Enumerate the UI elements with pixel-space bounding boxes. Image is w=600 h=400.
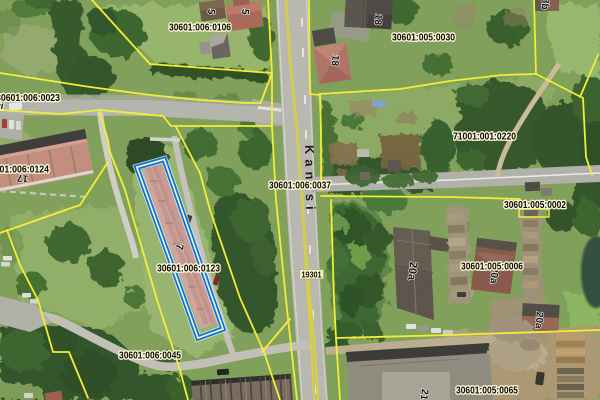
svg-text:argi: argi — [0, 101, 4, 112]
svg-text:20a: 20a — [405, 261, 419, 282]
svg-text:30601:005:0030: 30601:005:0030 — [392, 33, 455, 44]
svg-text:30601:005:0002: 30601:005:0002 — [504, 200, 566, 211]
svg-text:30601:006:0045: 30601:006:0045 — [119, 351, 181, 362]
svg-text:20a: 20a — [532, 311, 544, 329]
svg-text:21: 21 — [418, 388, 430, 400]
svg-text:30601:005:0065: 30601:005:0065 — [456, 386, 518, 397]
svg-text:30601:006:0037: 30601:006:0037 — [269, 181, 331, 192]
svg-text:30601:006:0023: 30601:006:0023 — [0, 93, 60, 104]
svg-text:8b: 8b — [539, 0, 551, 10]
svg-text:18: 18 — [329, 54, 341, 66]
svg-text:30601:005:0006: 30601:005:0006 — [461, 262, 523, 273]
svg-text:30601:006:0106: 30601:006:0106 — [169, 23, 231, 34]
svg-text:30601:006:0124: 30601:006:0124 — [0, 165, 49, 176]
svg-text:19301: 19301 — [302, 271, 322, 280]
svg-text:30601:006:0123: 30601:006:0123 — [157, 264, 220, 275]
svg-text:18: 18 — [372, 13, 384, 25]
svg-text:71001:001:0220: 71001:001:0220 — [453, 132, 516, 143]
